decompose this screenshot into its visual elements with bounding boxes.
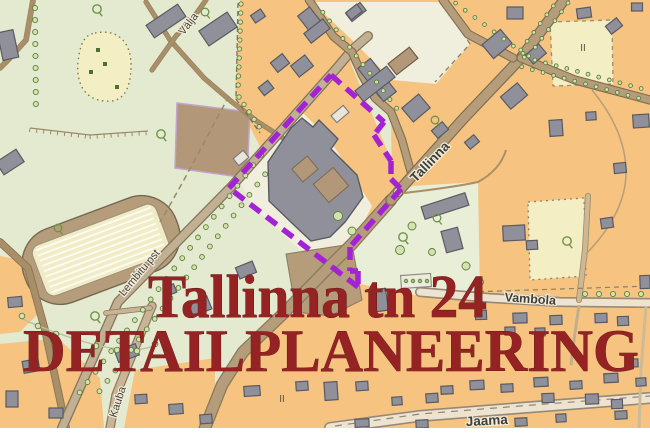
svg-text:Jaama: Jaama [465,412,508,428]
svg-text:II: II [279,394,285,405]
svg-text:II: II [580,43,586,54]
svg-text:DETAILPLANEERING: DETAILPLANEERING [23,318,639,384]
